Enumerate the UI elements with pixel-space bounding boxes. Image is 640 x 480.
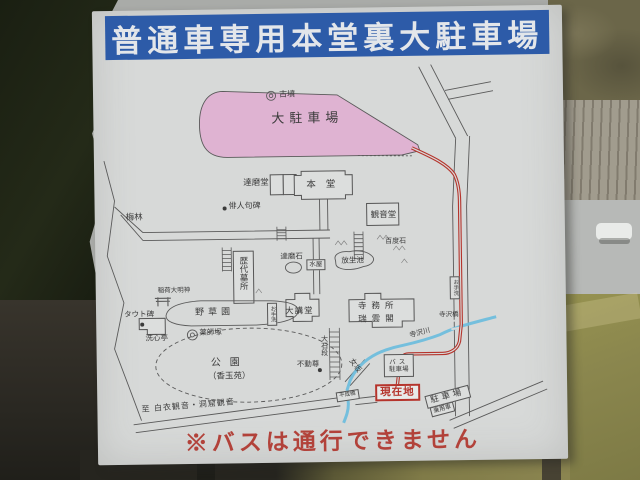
background-road-right: [556, 200, 640, 300]
label-fudoson: 不動尊: [297, 360, 320, 368]
label-yakushizuka: 薬師塚: [199, 329, 222, 337]
label-jimusho: 寺務所: [358, 302, 399, 311]
photo-of-temple-parking-map-sign: 普通車専用本堂裏大駐車場 ※バスは通行できません 古墳 大駐車場 達磨堂 本堂 …: [0, 0, 640, 480]
label-inari: 稲荷大明神: [158, 287, 191, 294]
label-hojoike: 放生池: [341, 257, 364, 265]
label-zuiunkaku: 瑞雲閣: [358, 315, 399, 324]
label-kannondo: 観音堂: [371, 211, 397, 220]
label-yasoen: 野草園: [195, 308, 234, 318]
label-kofun: 古墳: [279, 90, 295, 98]
current-location-badge: 現在地: [375, 384, 420, 401]
label-bairin: 梅林: [126, 214, 143, 223]
daruma-stone: [285, 262, 301, 273]
sign-title: 普通車専用本堂裏大駐車場: [111, 10, 544, 61]
kuhi-dot: [223, 206, 227, 210]
label-koen: 公園: [211, 358, 249, 369]
label-oishidan: 大石段: [320, 335, 327, 356]
label-rekidai-bosho: 歴代墓所: [238, 256, 247, 290]
darumado-building: [270, 175, 283, 195]
label-darumado: 達磨堂: [243, 179, 269, 188]
temple-map-drawing: [92, 5, 568, 466]
torii-icon: [155, 297, 171, 306]
label-darumaishi: 達磨石: [280, 252, 303, 260]
label-hyakudoishi: 百度石: [385, 238, 406, 245]
label-tauto-hi: タウト碑: [124, 310, 154, 318]
senshintei-building: [139, 318, 165, 334]
label-bus-parking-2: 駐車場: [389, 365, 409, 372]
sign-title-banner: 普通車専用本堂裏大駐車場: [105, 10, 550, 60]
fudoson-dot: [318, 368, 322, 372]
car-route-red-line: [394, 147, 462, 387]
label-terasawabashi: 寺沢橋: [439, 311, 459, 318]
label-senshintei: 洗心亭: [145, 334, 168, 342]
label-kogyokuen: （香玉苑）: [208, 372, 251, 381]
label-hondo: 本堂: [306, 180, 345, 190]
bare-scrub-right: [556, 100, 640, 204]
label-main-parking: 大駐車場: [271, 112, 343, 126]
label-daikodo: 大講堂: [285, 307, 314, 316]
sign-board: 普通車専用本堂裏大駐車場 ※バスは通行できません 古墳 大駐車場 達磨堂 本堂 …: [92, 5, 568, 466]
label-otearai-east: お手洗: [450, 276, 460, 299]
car-shadow: [599, 238, 630, 244]
label-haijin-kuhi: 俳人句碑: [229, 202, 261, 210]
label-otearai-west: お手洗: [267, 303, 277, 326]
bus-warning-text: ※バスは通行できません: [98, 419, 568, 460]
label-mizuya: 水屋: [306, 259, 325, 270]
bus-parking-box: バス 駐車場: [384, 354, 414, 377]
